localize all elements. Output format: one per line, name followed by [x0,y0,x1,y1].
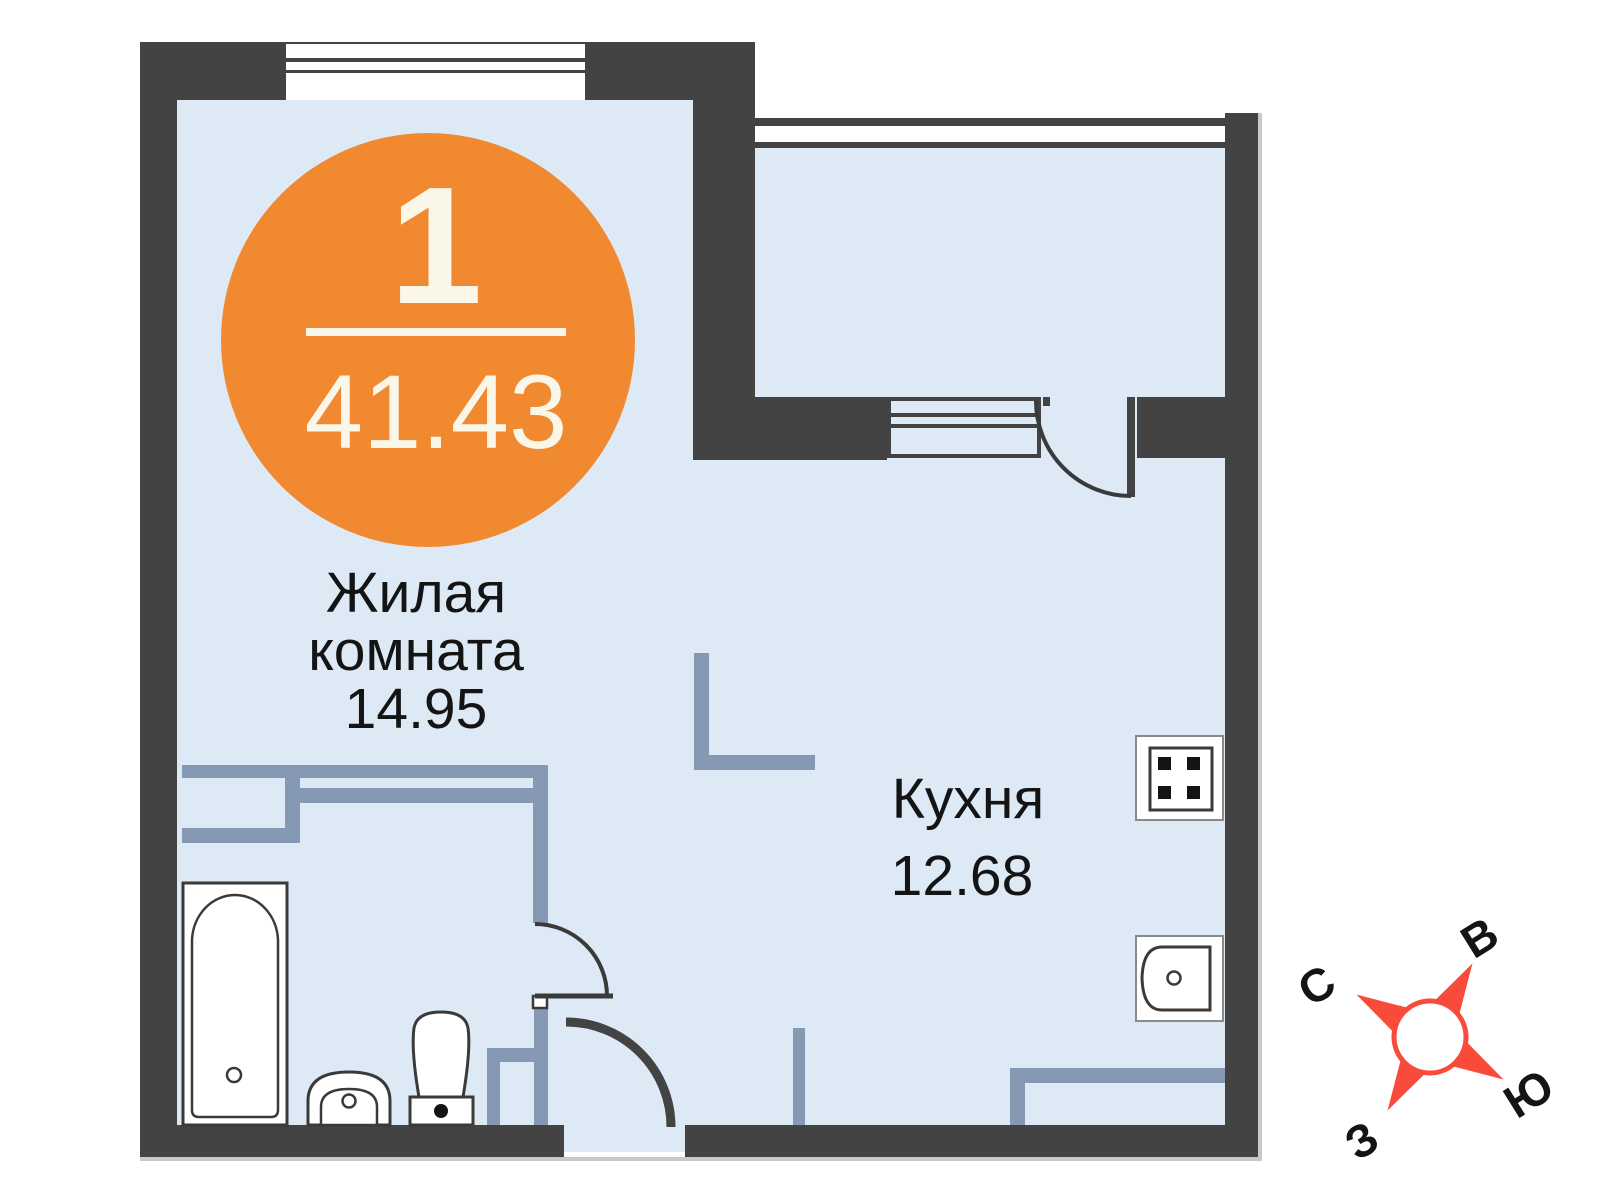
bathroom-sink-icon [308,1072,390,1125]
toilet-icon [410,1012,473,1125]
badge-total-area: 41.43 [305,354,568,471]
balcony-glazing [755,126,1225,142]
floor-plan: 1 41.43 Жилая комната 14.95 Кухня 12.68 … [0,0,1600,1200]
living-room-name-line1: Жилая [326,561,506,625]
floor-plan-page: 1 41.43 Жилая комната 14.95 Кухня 12.68 … [0,0,1600,1200]
living-room-area: 14.95 [345,677,488,741]
compass-south-label: Ю [1495,1059,1563,1128]
stove-icon [1136,736,1223,820]
outer-edge-right [1258,113,1262,1159]
balcony-fill [755,148,1225,397]
compass-rose: В С Ю З [1289,907,1563,1171]
living-room-window [286,44,585,100]
compass-east-label: В [1452,907,1508,969]
compass-west-label: З [1336,1111,1388,1170]
balcony-window [887,397,1041,458]
kitchen-area: 12.68 [891,844,1034,908]
kitchen-sink-icon [1136,936,1223,1021]
balcony-door-jamb [1043,397,1050,406]
outer-edge-bottom [140,1157,1262,1161]
room-count-badge: 1 41.43 [221,133,635,547]
bathtub-icon [183,883,287,1125]
compass-hub [1394,1001,1466,1073]
compass-north-label: С [1289,955,1345,1017]
badge-divider [306,328,566,336]
entrance-threshold [564,1125,685,1152]
badge-room-count: 1 [390,153,483,339]
living-room-name-line2: комната [308,619,524,683]
kitchen-name: Кухня [892,767,1045,831]
balcony-door-leaf [1127,397,1135,497]
